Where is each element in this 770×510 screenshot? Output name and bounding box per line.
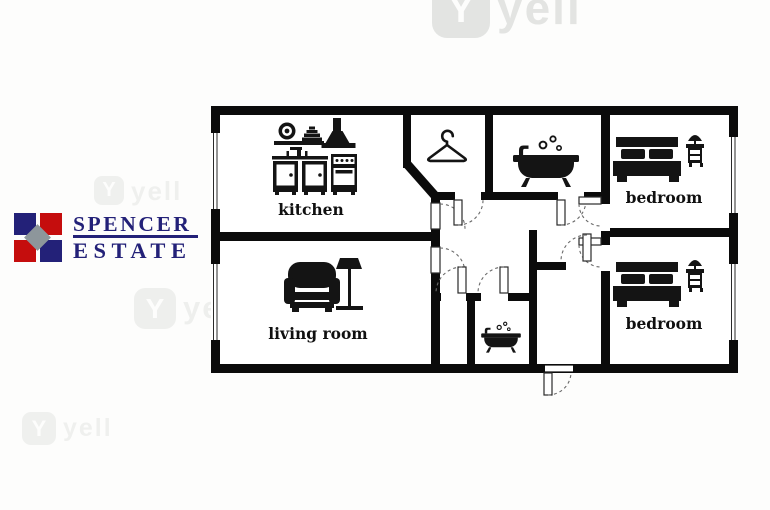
floor-plan: kitchen living room xyxy=(0,0,770,510)
bedroom-bottom-label: bedroom xyxy=(626,314,703,333)
entrance-door xyxy=(544,364,573,395)
kitchen-label: kitchen xyxy=(278,200,344,219)
armchair-icon xyxy=(284,262,340,312)
window xyxy=(211,262,220,342)
window xyxy=(729,262,738,342)
window xyxy=(211,131,220,211)
bedroom-top-label: bedroom xyxy=(626,188,703,207)
real-estate-floor-plan-listing: Y yell Y yell Y yell Y yell SPENCER ESTA… xyxy=(0,0,770,510)
window xyxy=(729,135,738,215)
living-room-label: living room xyxy=(268,324,368,343)
stove-icon xyxy=(331,154,357,195)
